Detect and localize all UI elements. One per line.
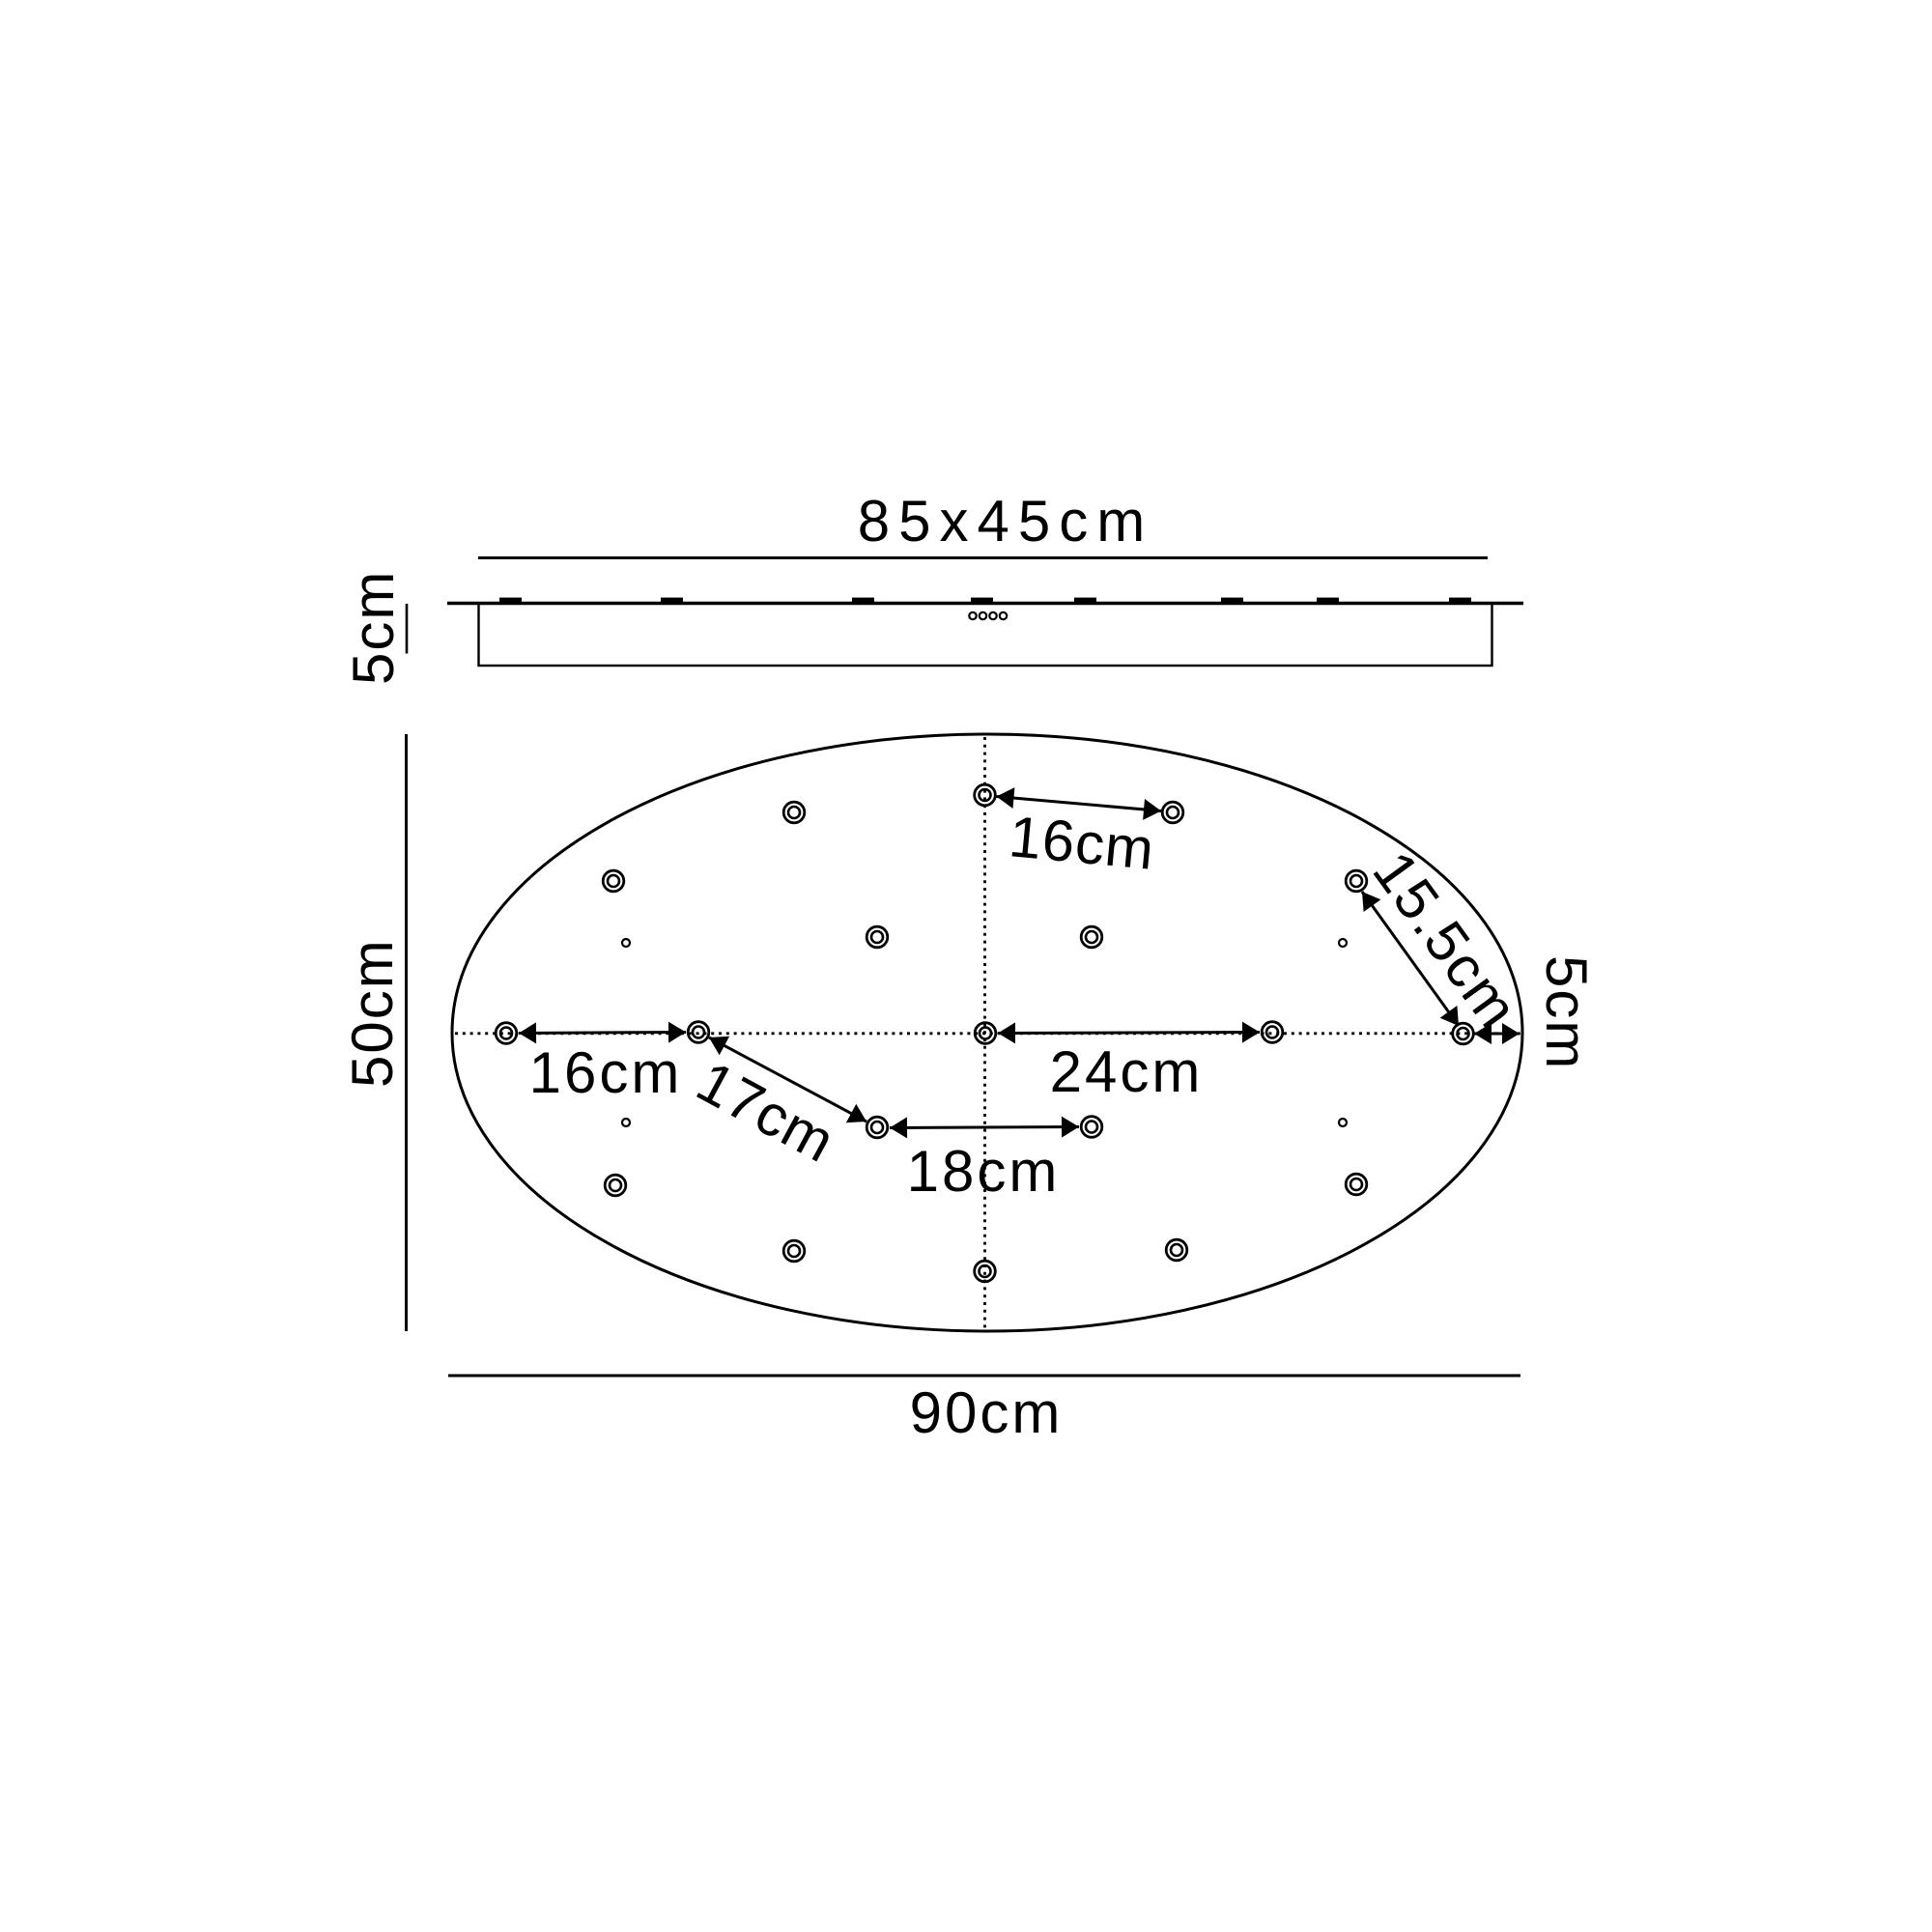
- svg-text:24cm: 24cm: [1050, 1039, 1204, 1104]
- svg-text:18cm: 18cm: [907, 1139, 1061, 1204]
- svg-text:5cm: 5cm: [341, 570, 406, 685]
- svg-text:16cm: 16cm: [529, 1040, 683, 1105]
- svg-text:50cm: 50cm: [340, 938, 405, 1088]
- svg-text:90cm: 90cm: [910, 1380, 1064, 1445]
- svg-text:5cm: 5cm: [1534, 955, 1599, 1070]
- svg-text:85x45cm: 85x45cm: [858, 489, 1153, 554]
- svg-text:16cm: 16cm: [1007, 804, 1157, 882]
